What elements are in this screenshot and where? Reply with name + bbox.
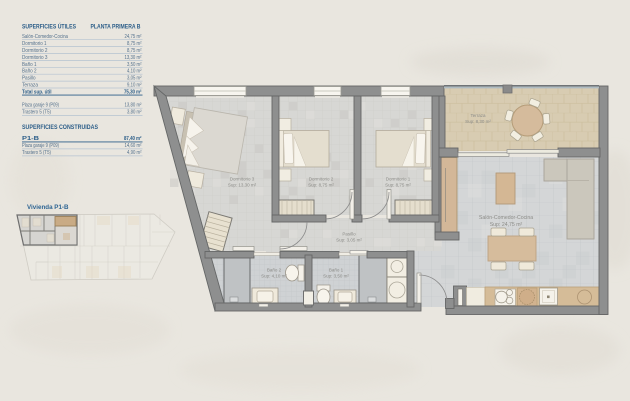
svg-text:8,75 m²: 8,75 m²	[127, 48, 142, 54]
svg-text:3,80 m²: 3,80 m²	[127, 110, 142, 116]
svg-text:Terraza: Terraza	[22, 83, 38, 89]
svg-text:Sup: 8,30 m²: Sup: 8,30 m²	[465, 119, 491, 124]
svg-text:PLANTA PRIMERA B: PLANTA PRIMERA B	[91, 24, 141, 31]
svg-text:Sup: 4,10 m²: Sup: 4,10 m²	[261, 274, 287, 279]
svg-text:Dormitorio 1: Dormitorio 1	[22, 41, 47, 47]
svg-text:Dormitorio 2: Dormitorio 2	[309, 177, 334, 182]
svg-text:Trastero 5 (T5): Trastero 5 (T5)	[22, 110, 51, 116]
svg-text:Plaza garaje 9 (P09): Plaza garaje 9 (P09)	[22, 143, 59, 149]
svg-text:Sup: 3,50 m²: Sup: 3,50 m²	[323, 274, 349, 279]
svg-text:Salón-Comedor-Cocina: Salón-Comedor-Cocina	[479, 215, 533, 221]
svg-text:Total sup. útil: Total sup. útil	[22, 89, 52, 95]
svg-text:3,50 m²: 3,50 m²	[127, 62, 142, 68]
svg-text:Terraza: Terraza	[470, 113, 486, 118]
svg-text:Salón-Comedor-Cocina: Salón-Comedor-Cocina	[22, 34, 68, 40]
svg-text:Sup: 8,75 m²: Sup: 8,75 m²	[308, 183, 334, 188]
svg-text:14,60 m²: 14,60 m²	[125, 143, 142, 149]
svg-text:Baño 1: Baño 1	[22, 62, 37, 68]
svg-text:Baño 2: Baño 2	[22, 69, 37, 75]
svg-text:Sup: 13,30 m²: Sup: 13,30 m²	[228, 183, 257, 188]
svg-text:Dormitorio 2: Dormitorio 2	[22, 48, 48, 54]
svg-text:Dormitorio 3: Dormitorio 3	[230, 177, 255, 182]
svg-text:4,90 m²: 4,90 m²	[127, 150, 142, 156]
svg-text:Trastero 5 (T5): Trastero 5 (T5)	[22, 150, 51, 156]
svg-text:Plaza garaje 9 (P09): Plaza garaje 9 (P09)	[22, 103, 59, 109]
svg-text:Pasillo: Pasillo	[22, 76, 36, 82]
svg-text:8,75 m²: 8,75 m²	[127, 41, 142, 47]
svg-text:Dormitorio 1: Dormitorio 1	[386, 177, 411, 182]
svg-text:Sup: 8,75 m²: Sup: 8,75 m²	[385, 183, 411, 188]
svg-text:Pasillo: Pasillo	[342, 232, 356, 237]
svg-text:75,30 m²: 75,30 m²	[124, 89, 142, 95]
svg-text:Dormitorio 3: Dormitorio 3	[22, 55, 48, 61]
svg-text:Sup: 3,05 m²: Sup: 3,05 m²	[336, 238, 362, 243]
svg-text:24,75 m²: 24,75 m²	[125, 34, 142, 40]
svg-text:Vivienda P1-B: Vivienda P1-B	[27, 204, 69, 211]
svg-text:SUPERFICIES ÚTILES: SUPERFICIES ÚTILES	[22, 24, 76, 31]
svg-text:SUPERFICIES CONSTRUIDAS: SUPERFICIES CONSTRUIDAS	[22, 124, 98, 131]
svg-text:4,10 m²: 4,10 m²	[127, 69, 142, 75]
svg-text:Baño 1: Baño 1	[329, 268, 344, 273]
svg-text:13,30 m²: 13,30 m²	[125, 55, 142, 61]
svg-text:P1-B: P1-B	[22, 136, 39, 142]
svg-text:9,10 m²: 9,10 m²	[127, 83, 142, 89]
svg-text:87,40 m²: 87,40 m²	[124, 136, 142, 142]
svg-text:13,80 m²: 13,80 m²	[125, 103, 142, 109]
svg-text:Baño 2: Baño 2	[267, 268, 282, 273]
svg-text:Sup: 24,75 m²: Sup: 24,75 m²	[490, 222, 523, 228]
svg-text:3,05 m²: 3,05 m²	[127, 76, 142, 82]
